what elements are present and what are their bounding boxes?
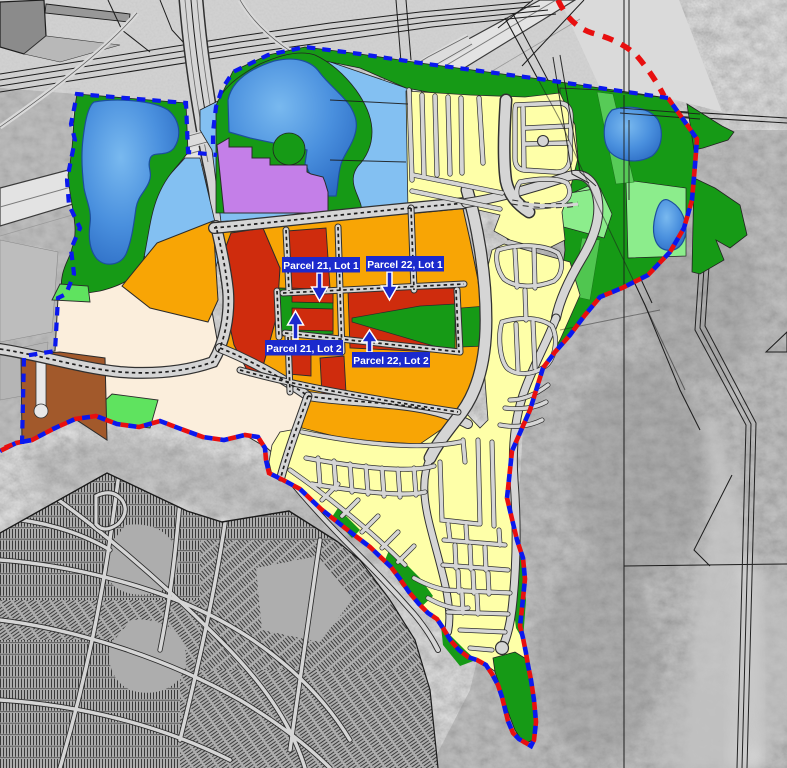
svg-text:Parcel 21, Lot 2: Parcel 21, Lot 2	[266, 344, 342, 355]
svg-text:Parcel 22, Lot 1: Parcel 22, Lot 1	[367, 260, 443, 271]
svg-text:Parcel 21, Lot 1: Parcel 21, Lot 1	[283, 261, 359, 272]
svg-text:Parcel 22, Lot 2: Parcel 22, Lot 2	[353, 356, 429, 367]
